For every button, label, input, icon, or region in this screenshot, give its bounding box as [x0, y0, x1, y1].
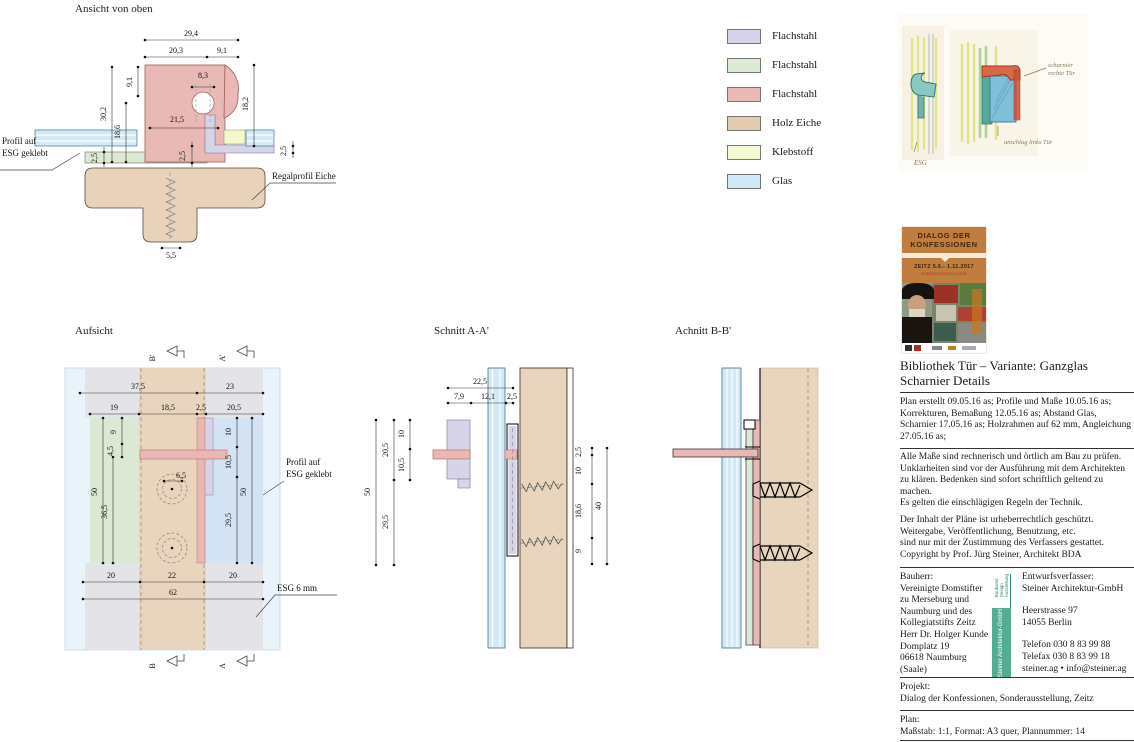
dim: 22 — [168, 571, 176, 580]
dim: 10 — [397, 430, 406, 438]
dim: 20 — [229, 571, 237, 580]
dim: 20,5 — [227, 403, 241, 412]
sketch-note-hinge-2: rechte Tür — [1048, 70, 1075, 77]
poster-header: DIALOG DER KONFESSIONEN ZEITZ 5.6.- 1.11… — [902, 227, 986, 283]
profile-cap-b — [744, 420, 755, 429]
legend-swatch-5 — [727, 174, 761, 189]
dim: 20,3 — [169, 46, 183, 55]
entwurf-contact: Telefon 030 8 83 99 88 Telefax 030 8 83 … — [1022, 640, 1134, 675]
plan-label: Plan: — [900, 715, 1134, 727]
legend-swatch-0 — [727, 29, 761, 44]
exhibition-poster: DIALOG DER KONFESSIONEN ZEITZ 5.6.- 1.11… — [902, 227, 986, 353]
divider — [900, 448, 1134, 449]
dim: 37,5 — [131, 382, 145, 391]
schnitt-a-geometry — [433, 368, 573, 648]
poster-notch — [941, 258, 949, 262]
section-marker-b-bottom: B — [148, 663, 157, 668]
dim: 22,5 — [473, 377, 487, 386]
dim: 9,1 — [217, 46, 227, 55]
dim: 10 — [574, 467, 583, 475]
dim: 10 — [224, 428, 233, 436]
callout-profil-line2: ESG geklebt — [2, 148, 48, 158]
schnitt-b-geometry — [673, 368, 818, 648]
dim: 36,5 — [100, 505, 109, 519]
dim: 18,6 — [574, 504, 583, 518]
dim: 2,5 — [507, 392, 517, 401]
hand-sketch: ESG scharnier rechte Tür anschlag links … — [898, 14, 1088, 172]
divider — [900, 710, 1134, 711]
dim: 50 — [90, 488, 99, 496]
dim: 19 — [110, 403, 118, 412]
address-block: Bauherr: Vereinigte Domstifter zu Merseb… — [900, 572, 1134, 678]
legend: Flachstahl Flachstahl Flachstahl Holz Ei… — [727, 29, 907, 194]
callout-regalprofil: Regalprofil Eiche — [272, 171, 336, 181]
badge-small-text: Baukunst Design Ausstellung — [994, 574, 1009, 597]
entwurf-name: Steiner Architektur-GmbH — [1022, 584, 1134, 596]
drawing-aufsicht: 37,5 23 19 18,5 2,5 20,5 50 36,5 9 4,5 1… — [60, 325, 350, 675]
divider — [900, 392, 1134, 393]
bauherr-address: Vereinigte Domstifter zu Merseburg und N… — [900, 584, 992, 677]
dim: 20 — [107, 571, 115, 580]
divider — [900, 567, 1134, 568]
plan-value: Maßstab: 1:1, Format: A3 quer, Plannumme… — [900, 727, 1134, 739]
glass-right — [246, 130, 274, 146]
dim: 62 — [169, 588, 177, 597]
legend-swatch-3 — [727, 116, 761, 131]
hinge-pin-hole — [192, 92, 214, 114]
dim: 29,4 — [184, 29, 198, 38]
section-marker-a-bottom: A — [218, 663, 227, 669]
wood-profile — [85, 168, 265, 242]
dim: 10,5 — [224, 455, 233, 469]
bauherr-label: Bauherr: — [900, 572, 992, 584]
badge-main: Steiner Architektur-GmbH — [992, 608, 1011, 678]
wood-section-b — [760, 368, 818, 648]
dim: 2,5 — [196, 403, 206, 412]
section-marker-b-top: B' — [148, 354, 157, 361]
legend-label: Flachstahl — [772, 30, 817, 42]
glass-section — [488, 368, 505, 648]
wood-section — [520, 368, 567, 648]
dim: 9 — [574, 549, 583, 553]
dim: 9,1 — [125, 77, 134, 87]
dim: 8,3 — [198, 71, 208, 80]
adhesive-wedge — [224, 130, 245, 144]
lavender-plate — [447, 420, 470, 479]
drawing-ansicht-von-oben: 29,4 20,3 9,1 8,3 18,2 30,2 18,6 9,1 21,… — [0, 0, 360, 268]
sketch-note-stop: anschlag links Tür — [1004, 139, 1053, 146]
plan-title-line2: Scharnier Details — [900, 373, 1134, 388]
legend-label: Holz Eiche — [772, 117, 821, 129]
pink-bar-section — [433, 450, 470, 459]
dim: 2,5 — [279, 146, 288, 156]
divider — [900, 677, 1134, 678]
badge-main-text: Steiner Architektur-GmbH — [996, 609, 1008, 677]
plan-block: Plan: Maßstab: 1:1, Format: A3 quer, Pla… — [900, 715, 1134, 738]
dim: 50 — [239, 488, 248, 496]
drawing-schnitt-a: 22,5 7,9 12,1 2,5 50 20,5 29,5 10 10,5 2… — [360, 325, 640, 675]
revision-notes: Plan erstellt 09.05.16 as; Profile und M… — [900, 397, 1134, 443]
callout-profil-line2: ESG geklebt — [286, 469, 332, 479]
plan-title-line1: Bibliothek Tür – Variante: Ganzglas — [900, 358, 1134, 373]
pink-bar — [140, 450, 227, 459]
blue-column — [206, 418, 263, 563]
drawing-schnitt-b — [660, 325, 890, 675]
poster-subtitle: SONDERAUSSTELLUNG — [902, 272, 986, 276]
legend-swatch-4 — [727, 145, 761, 160]
dim: 7,9 — [454, 392, 464, 401]
projekt-label: Projekt: — [900, 682, 1134, 694]
portrait-body — [902, 317, 932, 343]
dim: 2,5 — [178, 151, 187, 161]
legend-label: Flachstahl — [772, 59, 817, 71]
lavender-plate-step — [458, 479, 470, 488]
dim: 2,5 — [90, 153, 99, 163]
projekt-block: Projekt: Dialog der Konfessionen, Sonder… — [900, 682, 1134, 705]
projekt-value: Dialog der Konfessionen, Sonderausstellu… — [900, 694, 1134, 706]
dim: 10,5 — [397, 458, 406, 472]
badge-top: Baukunst Design Ausstellung — [992, 574, 1011, 608]
legend-swatch-2 — [727, 87, 761, 102]
legend-swatch-1 — [727, 58, 761, 73]
dim: 50 — [363, 488, 372, 496]
callout-esg-6mm: ESG 6 mm — [277, 583, 317, 593]
dim: 29,5 — [224, 513, 233, 527]
poster-collage — [902, 283, 986, 343]
dim: 30,2 — [99, 107, 108, 121]
legend-label: Klebstoff — [772, 146, 813, 158]
entwurf-column: Entwurfsverfasser: Steiner Architektur-G… — [1022, 572, 1134, 678]
dim: 18,6 — [113, 125, 122, 139]
steiner-badge: Baukunst Design Ausstellung Steiner Arch… — [992, 574, 1011, 678]
pink-stem — [197, 418, 205, 563]
entwurf-address: Heerstrasse 97 14055 Berlin — [1022, 606, 1134, 629]
check-notes: Alle Maße sind rechnerisch und örtlich a… — [900, 452, 1134, 510]
poster-title-line2: KONFESSIONEN — [902, 241, 986, 250]
plan-title: Bibliothek Tür – Variante: Ganzglas Scha… — [900, 358, 1134, 388]
callout-profil-line1: Profil auf — [2, 136, 36, 146]
wood-edge-strip — [567, 368, 573, 648]
bauherr-column: Bauherr: Vereinigte Domstifter zu Merseb… — [900, 572, 992, 678]
dim: 29,5 — [381, 515, 390, 529]
callout-profil-line1: Profil auf — [286, 457, 320, 467]
dim: 20,5 — [381, 443, 390, 457]
dim: 12,1 — [481, 392, 495, 401]
sketch-note-hinge-1: scharnier — [1048, 62, 1073, 69]
dim: 23 — [226, 382, 234, 391]
dim: 4,5 — [106, 446, 115, 456]
poster-date: ZEITZ 5.6.- 1.11.2017 — [902, 264, 986, 270]
copyright-notes: Der Inhalt der Pläne ist urheberrechtlic… — [900, 515, 1134, 561]
dim: 5,5 — [166, 251, 176, 260]
plan-sheet: Ansicht von oben Aufsicht Schnitt A-A' A… — [0, 0, 1134, 742]
dim: 40 — [594, 502, 603, 510]
dim: 9 — [109, 430, 118, 434]
badge-column: Baukunst Design Ausstellung Steiner Arch… — [992, 572, 1022, 678]
entwurf-label: Entwurfsverfasser: — [1022, 572, 1134, 584]
dim: 2,5 — [574, 447, 583, 457]
dim: 6,5 — [176, 471, 186, 480]
pink-hinge-bulge — [224, 65, 238, 118]
pink-bar-b — [673, 449, 758, 457]
dim: 18,2 — [241, 97, 250, 111]
glass-section-b — [722, 368, 741, 648]
ansicht-geometry — [35, 65, 274, 242]
legend-label: Flachstahl — [772, 88, 817, 100]
dim: 21,5 — [170, 115, 184, 124]
sketch-note-esg: ESG — [913, 159, 927, 167]
section-marker-a-top: A' — [218, 354, 227, 362]
poster-footer — [902, 343, 986, 353]
pink-bar-through — [505, 450, 517, 459]
divider — [900, 740, 1134, 741]
dim: 18,5 — [161, 403, 175, 412]
legend-label: Glas — [772, 175, 792, 187]
